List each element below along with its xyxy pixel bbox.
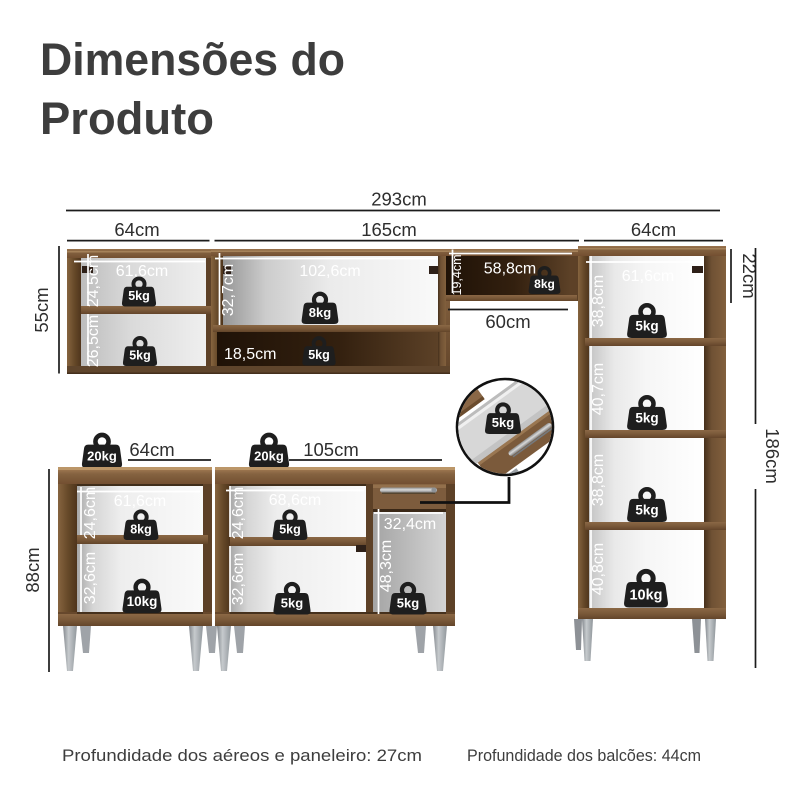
svg-text:48,3cm: 48,3cm — [378, 540, 395, 592]
svg-text:5kg: 5kg — [279, 523, 301, 537]
svg-text:5kg: 5kg — [308, 348, 330, 362]
svg-text:61,6cm: 61,6cm — [622, 268, 674, 285]
svg-text:32,6cm: 32,6cm — [82, 552, 99, 604]
svg-text:8kg: 8kg — [130, 523, 152, 537]
svg-text:40,8cm: 40,8cm — [590, 543, 607, 595]
svg-text:5kg: 5kg — [281, 596, 303, 611]
svg-text:24,6cm: 24,6cm — [82, 487, 99, 539]
svg-text:5kg: 5kg — [635, 411, 658, 426]
svg-text:20kg: 20kg — [87, 449, 117, 464]
svg-text:8kg: 8kg — [534, 277, 555, 291]
svg-text:32,6cm: 32,6cm — [230, 553, 247, 605]
svg-text:64cm: 64cm — [129, 439, 174, 460]
svg-text:102,6cm: 102,6cm — [299, 263, 360, 280]
svg-text:40,7cm: 40,7cm — [590, 363, 607, 415]
svg-text:88cm: 88cm — [22, 547, 43, 592]
svg-text:8kg: 8kg — [309, 305, 331, 320]
svg-text:64cm: 64cm — [631, 219, 676, 240]
svg-text:10kg: 10kg — [127, 594, 158, 609]
svg-text:60cm: 60cm — [485, 311, 530, 332]
svg-text:105cm: 105cm — [303, 439, 359, 460]
svg-text:165cm: 165cm — [361, 219, 417, 240]
svg-text:Produto: Produto — [40, 93, 214, 144]
svg-text:5kg: 5kg — [128, 289, 150, 303]
svg-text:5kg: 5kg — [635, 503, 658, 518]
svg-text:32,7cm: 32,7cm — [220, 264, 237, 316]
svg-text:Profundidade dos balcões: 44cm: Profundidade dos balcões: 44cm — [467, 747, 701, 765]
svg-text:293cm: 293cm — [371, 189, 427, 210]
svg-text:38,8cm: 38,8cm — [590, 275, 607, 327]
svg-text:24,6cm: 24,6cm — [230, 487, 247, 539]
svg-text:22cm: 22cm — [739, 253, 760, 298]
svg-text:18,5cm: 18,5cm — [224, 346, 276, 363]
svg-text:32,4cm: 32,4cm — [384, 516, 436, 533]
svg-text:5kg: 5kg — [635, 319, 658, 334]
svg-text:38,8cm: 38,8cm — [590, 454, 607, 506]
svg-text:Dimensões do: Dimensões do — [40, 34, 345, 85]
svg-text:26,5cm: 26,5cm — [85, 315, 102, 367]
svg-text:24,5cm: 24,5cm — [85, 255, 102, 307]
svg-text:68,6cm: 68,6cm — [269, 492, 321, 509]
svg-text:5kg: 5kg — [492, 415, 514, 430]
svg-text:10kg: 10kg — [629, 588, 662, 604]
svg-text:Profundidade dos aéreos e pane: Profundidade dos aéreos e paneleiro: 27c… — [62, 747, 422, 765]
svg-text:20kg: 20kg — [254, 449, 284, 464]
svg-text:58,8cm: 58,8cm — [484, 261, 536, 278]
svg-text:61,6cm: 61,6cm — [114, 493, 166, 510]
svg-text:186cm: 186cm — [762, 428, 783, 484]
svg-text:64cm: 64cm — [114, 219, 159, 240]
svg-text:5kg: 5kg — [129, 349, 151, 363]
svg-text:19,4cm: 19,4cm — [450, 255, 464, 296]
svg-text:5kg: 5kg — [397, 596, 419, 611]
svg-text:55cm: 55cm — [31, 287, 52, 332]
